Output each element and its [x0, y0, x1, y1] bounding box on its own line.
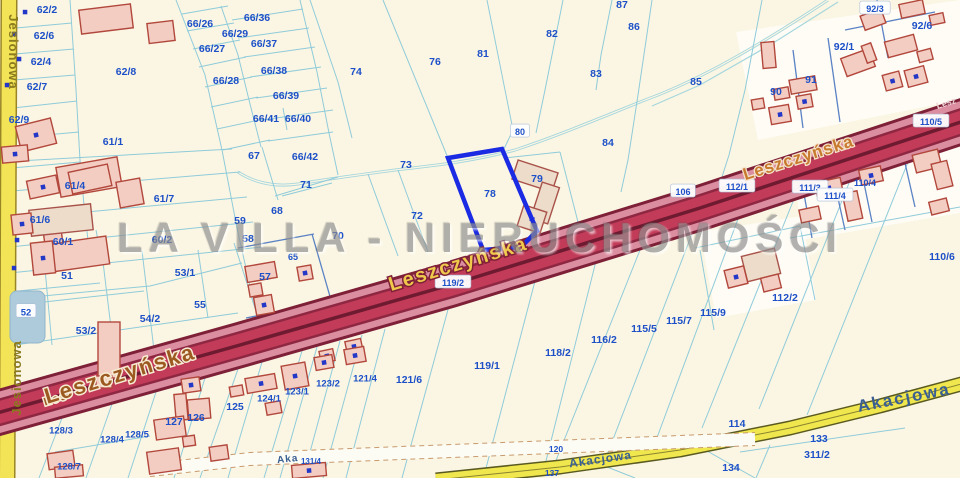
parcel-number-66-28: 66/28 — [213, 75, 239, 87]
parcel-number-131-4: 131/4 — [301, 457, 322, 466]
parcel-number-61-1: 61/1 — [103, 136, 124, 148]
parcel-number-53-2: 53/2 — [76, 325, 97, 337]
parcel-number-110-6: 110/6 — [929, 251, 955, 263]
parcel-number-83: 83 — [590, 68, 602, 80]
parcel-number-66-29: 66/29 — [222, 28, 248, 40]
parcel-number-115-9: 115/9 — [700, 307, 726, 319]
parcel-number-124-1: 124/1 — [257, 393, 281, 404]
parcel-number-60-1: 60/1 — [53, 236, 74, 248]
parcel-number-58: 58 — [242, 233, 254, 245]
building — [116, 178, 144, 208]
building — [26, 175, 59, 199]
building — [796, 94, 813, 109]
parcel-number-66-40: 66/40 — [285, 113, 311, 125]
parcel-number-92-1: 92/1 — [834, 41, 855, 53]
parcel-number-123-2: 123/2 — [316, 378, 340, 389]
street-label-aka: Aka — [277, 453, 299, 466]
parcel-number-62-6: 62/6 — [34, 30, 55, 42]
street-label-akacjowa: Akacjowa — [856, 379, 952, 416]
parcel-number-66-37: 66/37 — [251, 38, 277, 50]
parcel-number-65: 65 — [288, 252, 298, 262]
building — [769, 104, 792, 124]
parcel-number-55: 55 — [194, 299, 206, 311]
building — [314, 355, 334, 371]
parcel-number-62-4: 62/4 — [31, 56, 52, 68]
parcel-number-62-8: 62/8 — [116, 66, 137, 78]
parcel-number-66-26: 66/26 — [187, 18, 213, 30]
parcel-number-123-1: 123/1 — [285, 386, 309, 397]
building — [344, 346, 366, 364]
building — [1, 145, 28, 163]
parcel-number-87: 87 — [616, 0, 628, 11]
parcel-number-59: 59 — [234, 215, 246, 227]
parcel-number-67: 67 — [248, 150, 260, 162]
parcel-number-71: 71 — [300, 179, 312, 191]
parcel-number-80: 80 — [515, 127, 525, 137]
parcel-number-121-6: 121/6 — [396, 374, 422, 386]
building — [248, 283, 263, 297]
parcel-number-128-5: 128/5 — [125, 429, 149, 440]
parcel-number-86: 86 — [628, 21, 640, 33]
parcel-number-111-4: 111/4 — [824, 191, 846, 201]
parcel-number-62-9: 62/9 — [9, 114, 30, 126]
parcel-number-53-1: 53/1 — [175, 267, 196, 279]
building — [209, 445, 229, 461]
parcel-number-110-4: 110/4 — [854, 178, 876, 188]
parcel-number-84: 84 — [602, 137, 614, 149]
parcel-number-66-36: 66/36 — [244, 12, 270, 24]
parcel-number-85: 85 — [690, 76, 702, 88]
parcel-number-112-2: 112/2 — [772, 292, 798, 304]
building — [229, 385, 244, 397]
parcel-number-128-7: 128/7 — [57, 461, 81, 472]
parcel-number-121-4: 121/4 — [353, 373, 377, 384]
parcel-number-134: 134 — [722, 462, 740, 474]
parcel-number-127: 127 — [165, 416, 183, 428]
building — [79, 4, 134, 34]
parcel-number-126: 126 — [187, 412, 205, 424]
parcel-number-92-3: 92/3 — [866, 4, 884, 14]
parcel-number-128-3: 128/3 — [49, 425, 73, 436]
building — [147, 20, 175, 43]
parcel-number-119-2: 119/2 — [442, 278, 464, 288]
building — [724, 266, 748, 288]
parcel-number-54-2: 54/2 — [140, 313, 161, 325]
parcel-number-120: 120 — [549, 444, 563, 454]
building — [254, 295, 275, 316]
street-label-jesionowa: Jesionowa — [6, 14, 21, 89]
building — [245, 374, 277, 394]
parcel-number-66-27: 66/27 — [199, 43, 225, 55]
parcel-number-118-2: 118/2 — [545, 347, 571, 359]
building — [761, 41, 776, 68]
parcel-number-62-2: 62/2 — [37, 4, 58, 16]
parcel-number-66-41: 66/41 — [253, 113, 279, 125]
parcel-number-66-39: 66/39 — [273, 90, 299, 102]
parcel-number-81: 81 — [477, 48, 489, 60]
building — [882, 71, 903, 91]
parcel-number-115-5: 115/5 — [631, 323, 657, 335]
street-label-jesionowa: Jesionowa — [9, 340, 24, 415]
building — [751, 98, 765, 110]
parcel-number-92-6: 92/6 — [912, 20, 933, 32]
parcel-number-70: 70 — [332, 230, 344, 242]
parcel-number-60-2: 60/2 — [152, 234, 173, 246]
building — [147, 448, 182, 474]
parcel-number-78: 78 — [484, 188, 496, 200]
survey-dot — [15, 238, 19, 243]
parcel-number-51: 51 — [61, 270, 73, 282]
cadastral-map: 62/262/662/462/762/962/861/166/2666/2966… — [0, 0, 960, 478]
parcel-number-61-4: 61/4 — [65, 180, 86, 192]
parcel-number-112-1: 112/1 — [726, 182, 748, 192]
parcel-number-125: 125 — [226, 401, 244, 413]
parcel-number-61-7: 61/7 — [154, 193, 175, 205]
cadastral-map-canvas[interactable]: 62/262/662/462/762/962/861/166/2666/2966… — [0, 0, 960, 478]
parcel-number-119-1: 119/1 — [474, 360, 500, 372]
building — [297, 265, 313, 281]
parcel-number-52: 52 — [21, 307, 32, 318]
parcel-number-62-7: 62/7 — [27, 81, 48, 93]
parcel-number-61-6: 61/6 — [30, 214, 51, 226]
building — [182, 435, 195, 447]
parcel-number-74: 74 — [350, 66, 362, 78]
parcel-number-79: 79 — [531, 173, 543, 185]
parcel-number-91: 91 — [805, 74, 817, 86]
survey-dot — [12, 266, 16, 271]
parcel-number-137: 137 — [545, 468, 559, 478]
parcel-number-66-38: 66/38 — [261, 65, 287, 77]
parcel-number-66-42: 66/42 — [292, 151, 318, 163]
parcel-number-106: 106 — [675, 187, 690, 197]
parcel-number-114: 114 — [729, 418, 746, 430]
parcel-number-82: 82 — [546, 28, 558, 40]
parcel-number-72: 72 — [411, 210, 423, 222]
building — [181, 377, 201, 393]
parcel-number-68: 68 — [271, 205, 283, 217]
parcel-number-76: 76 — [429, 56, 441, 68]
parcel-number-311-2: 311/2 — [804, 449, 830, 461]
parcel-number-57: 57 — [259, 271, 271, 283]
parcel-number-90: 90 — [770, 86, 782, 98]
survey-dot — [23, 10, 28, 15]
parcel-number-73: 73 — [400, 159, 412, 171]
parcel-number-115-7: 115/7 — [666, 315, 692, 327]
parcel-number-116-2: 116/2 — [591, 334, 617, 346]
parcel-number-128-4: 128/4 — [100, 434, 124, 445]
parcel-number-110-5: 110/5 — [920, 117, 942, 127]
stream-layer — [238, 0, 838, 185]
parcel-number-133: 133 — [810, 433, 828, 445]
